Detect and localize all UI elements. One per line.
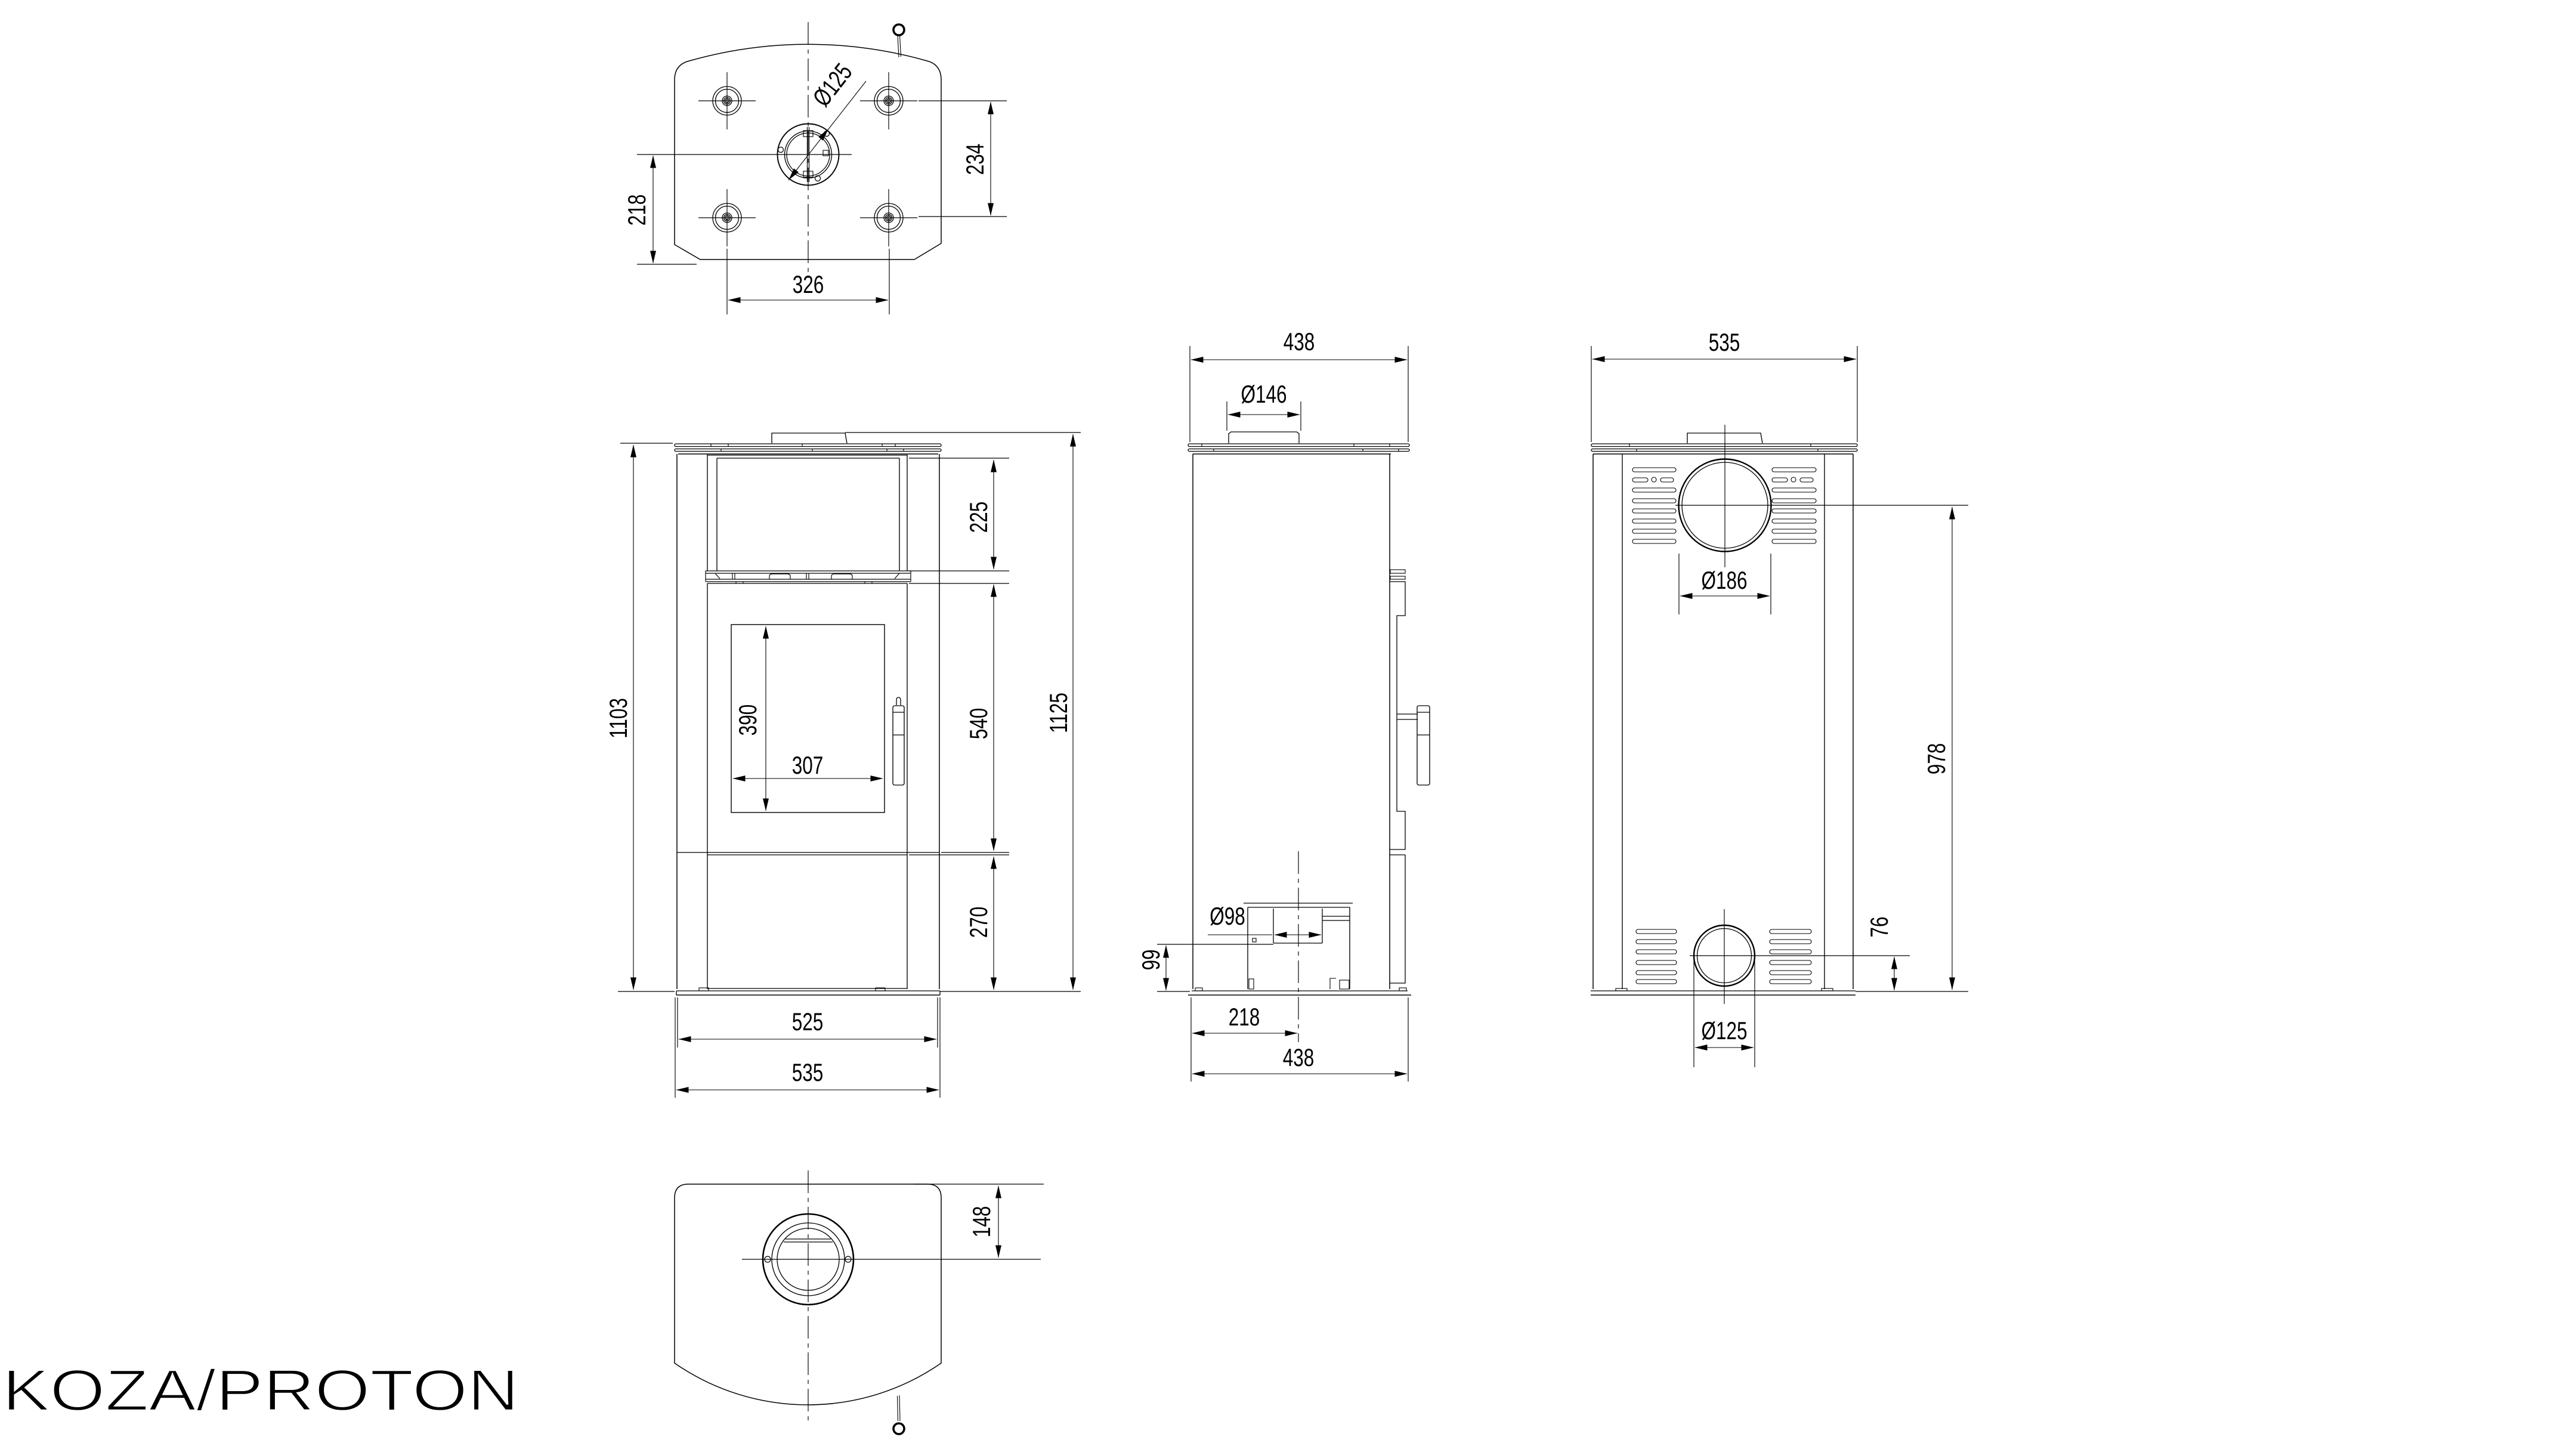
svg-text:234: 234 (961, 144, 989, 175)
svg-text:99: 99 (1137, 949, 1165, 970)
svg-text:438: 438 (1283, 1043, 1315, 1072)
svg-text:1125: 1125 (1044, 693, 1073, 733)
svg-text:535: 535 (792, 1058, 824, 1087)
svg-text:525: 525 (792, 1008, 824, 1036)
svg-text:Ø125: Ø125 (1701, 1017, 1747, 1045)
svg-text:326: 326 (793, 270, 824, 299)
svg-text:438: 438 (1284, 328, 1315, 356)
svg-text:Ø186: Ø186 (1701, 566, 1747, 595)
svg-text:76: 76 (1865, 916, 1894, 937)
svg-text:390: 390 (734, 705, 762, 736)
svg-text:270: 270 (964, 907, 993, 938)
svg-text:225: 225 (964, 502, 993, 533)
svg-text:1103: 1103 (604, 698, 633, 739)
svg-text:978: 978 (1922, 743, 1951, 775)
svg-text:Ø146: Ø146 (1241, 380, 1287, 409)
svg-text:218: 218 (1229, 1003, 1260, 1031)
svg-text:307: 307 (792, 751, 824, 780)
svg-text:KOZA/PROTON: KOZA/PROTON (2, 1358, 519, 1423)
svg-text:218: 218 (623, 194, 651, 226)
svg-text:148: 148 (967, 1206, 996, 1238)
svg-text:540: 540 (964, 708, 993, 740)
svg-text:Ø125: Ø125 (807, 58, 858, 112)
svg-text:535: 535 (1709, 328, 1740, 357)
svg-text:Ø98: Ø98 (1210, 902, 1245, 931)
